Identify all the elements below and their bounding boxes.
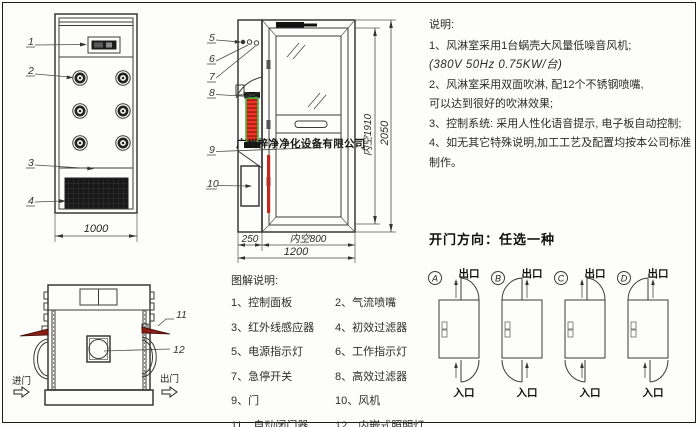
nozzle <box>73 136 87 150</box>
top-view-outline <box>44 285 154 405</box>
svg-text:2: 2 <box>27 65 34 77</box>
legend-block: 图解说明: 1、控制面板 2、气流喷嘴 3、红外线感应器 4、初效过滤器 5、电… <box>231 272 429 427</box>
legend-item: 10、风机 <box>335 392 427 408</box>
entry-label: 入口 <box>580 387 601 399</box>
auto-door-closer-left <box>20 326 48 336</box>
option-letter: A <box>431 274 438 284</box>
legend-item: 3、红外线感应器 <box>231 319 335 335</box>
exit-arrow: 出门 <box>160 373 179 397</box>
callout-10: 10 <box>206 178 252 190</box>
nozzle <box>116 71 130 85</box>
door-handle <box>295 121 327 128</box>
svg-text:5: 5 <box>209 32 215 44</box>
legend-item: 7、急停开关 <box>231 368 335 384</box>
callout-6: 6 <box>207 45 248 65</box>
callout-11: 11 <box>158 309 187 326</box>
entry-arrow: 进门 <box>12 375 31 397</box>
entry-label: 进门 <box>12 375 31 387</box>
nozzle <box>116 136 130 150</box>
legend-item: 8、高效过滤器 <box>335 368 427 384</box>
legend-item: 2、气流喷嘴 <box>335 294 427 310</box>
callout-5: 5 <box>207 32 242 44</box>
callout-4: 4 <box>26 195 66 207</box>
callout-2: 2 <box>26 65 74 79</box>
legend-title: 图解说明: <box>231 272 429 288</box>
option-letter: D <box>621 274 628 284</box>
hepa-filter-assembly <box>236 77 262 168</box>
legend-item: 12、内嵌式照明灯 <box>335 417 427 427</box>
door <box>262 20 355 232</box>
door-option-d: D 出口 入口 <box>615 262 679 412</box>
note-line: 可以达到很好的吹淋效果; <box>429 95 697 115</box>
glass-hatch <box>287 43 326 109</box>
legend-item: 4、初效过滤器 <box>335 319 427 335</box>
nozzles <box>73 71 130 150</box>
legend-item: 5、电源指示灯 <box>231 343 335 359</box>
legend-item: 1、控制面板 <box>231 294 335 310</box>
indicator-lights <box>241 40 259 45</box>
note-line: 4、如无其它特殊说明,加工工艺及配置均按本公司标准制作。 <box>429 134 697 173</box>
door-option-a: A 出口 入口 <box>426 262 490 412</box>
svg-text:10: 10 <box>207 178 219 190</box>
exit-label: 出口 <box>648 267 669 280</box>
dim-1200: 1200 <box>284 246 309 258</box>
front-view: 1 2 3 4 1000 <box>18 8 208 258</box>
dim-total-height: 2050 <box>379 120 391 146</box>
callout-1: 1 <box>26 36 87 48</box>
note-line: 2、风淋室采用双面吹淋, 配12个不锈钢喷嘴, <box>429 76 697 96</box>
height-dimensions: 内空1910 2050 <box>355 20 396 232</box>
ceiling-lamp <box>87 336 110 362</box>
svg-text:1: 1 <box>28 36 34 48</box>
control-panel <box>88 37 120 53</box>
notes-block: 说明: 1、风淋室采用1台蜗壳大风量低噪音风机; (380V 50Hz 0.75… <box>429 16 697 173</box>
nozzle <box>73 71 87 85</box>
svg-text:3: 3 <box>28 157 34 169</box>
legend-item: 11、自动闭门器 <box>231 417 335 427</box>
air-shower-drawing: 1 2 3 4 1000 <box>0 0 700 427</box>
door-closer <box>276 22 317 28</box>
option-letter: B <box>495 274 501 284</box>
svg-text:11: 11 <box>176 309 187 321</box>
dim-1000: 1000 <box>84 223 109 235</box>
svg-text:8: 8 <box>209 87 215 99</box>
svg-text:9: 9 <box>209 144 215 156</box>
dim-250: 250 <box>241 234 259 245</box>
door-option-c: C 出口 入口 <box>552 262 616 412</box>
door-edge-strip <box>267 155 270 213</box>
entry-label: 入口 <box>517 387 538 399</box>
entry-label: 入口 <box>454 387 475 399</box>
svg-text:12: 12 <box>173 344 185 356</box>
svg-text:7: 7 <box>209 71 216 83</box>
width-dimension: 1000 <box>55 214 137 242</box>
legend-item: 6、工作指示灯 <box>335 343 427 359</box>
dim-inner-width: 内空800 <box>290 233 327 245</box>
note-line: (380V 50Hz 0.75KW/台) <box>429 56 697 76</box>
note-line: 3、控制系统: 采用人性化语音提示, 电子板自动控制; <box>429 115 697 135</box>
notes-title: 说明: <box>429 16 697 36</box>
intake-grille <box>65 178 128 208</box>
company-watermark: 广州梓净净化设备有限公司 <box>236 136 366 151</box>
note-line: 1、风淋室采用1台蜗壳大风量低噪音风机; <box>429 37 697 57</box>
top-view: 11 12 进门 出门 <box>8 262 213 425</box>
exit-label: 出口 <box>522 267 543 280</box>
width-dimensions: 250 内空800 1200 <box>238 232 355 263</box>
door-option-b: B 出口 入口 <box>489 262 553 412</box>
nozzle <box>73 104 87 118</box>
entry-label: 入口 <box>643 387 664 399</box>
door-direction-title: 开门方向：任选一种 <box>429 229 555 248</box>
nozzle <box>116 104 130 118</box>
legend-item: 9、门 <box>231 392 335 408</box>
option-letter: C <box>558 274 565 284</box>
svg-text:6: 6 <box>209 53 215 65</box>
exit-label: 出门 <box>160 373 179 385</box>
svg-text:4: 4 <box>28 195 34 207</box>
